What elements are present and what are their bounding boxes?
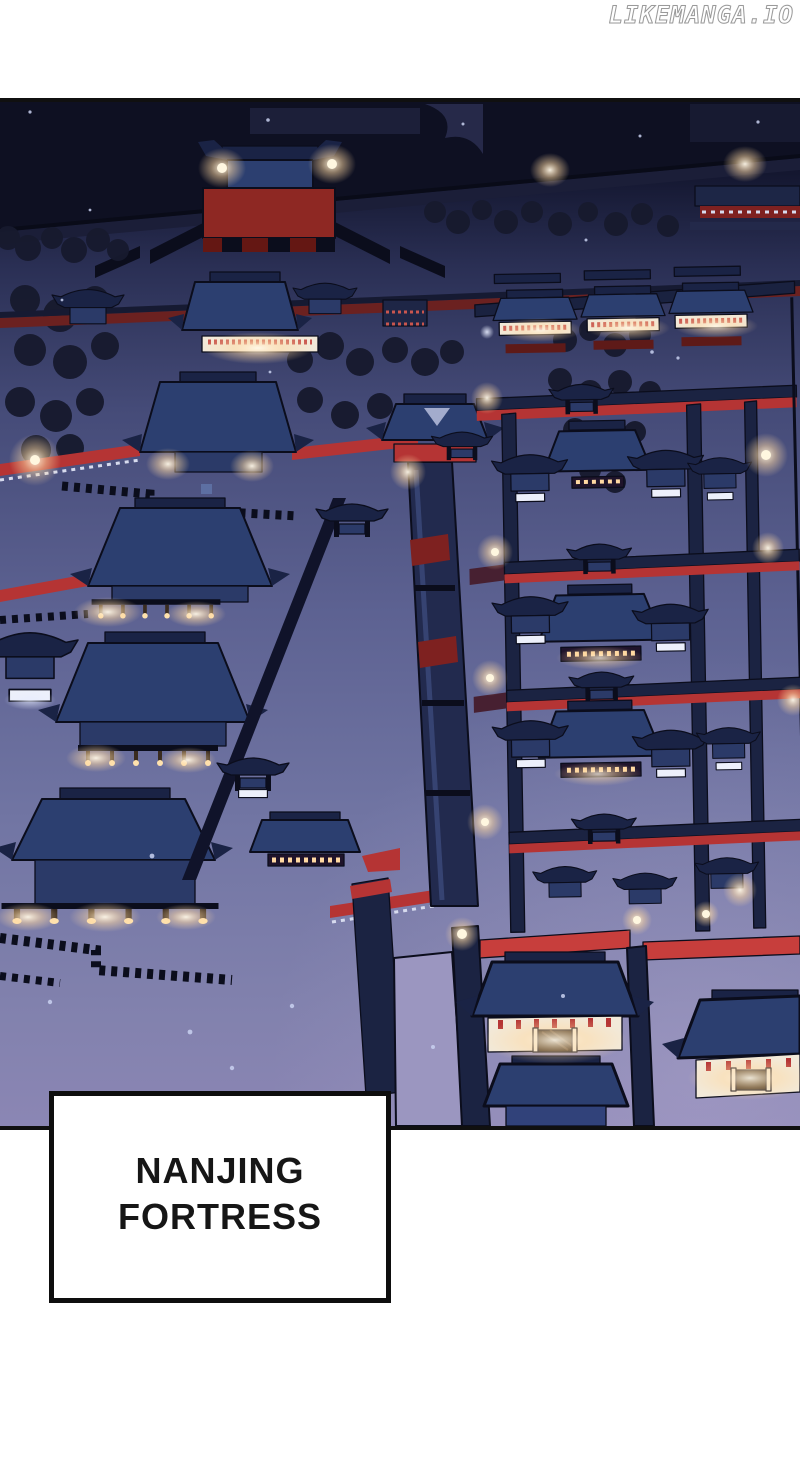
lit-lintel	[657, 769, 686, 778]
caption-line-2: FORTRESS	[54, 1194, 386, 1240]
distant-silhouette	[690, 104, 800, 142]
site-watermark: LIKEMANGA.IO	[609, 1, 794, 29]
gate-base	[203, 188, 335, 238]
manga-page: LIKEMANGA.IO	[0, 0, 800, 1471]
lit-lintel	[707, 492, 733, 500]
top-right-building	[690, 186, 800, 230]
night-scene-svg	[0, 102, 800, 1126]
lit-lintel	[516, 493, 545, 502]
lit-lintel	[239, 790, 268, 798]
lit-lintel	[652, 489, 681, 498]
light-wall	[394, 952, 464, 1126]
lit-lintel	[516, 635, 545, 644]
caption-line-1: NANJING	[54, 1148, 386, 1194]
lit-lintel	[716, 762, 742, 770]
lit-lintel	[656, 643, 685, 652]
caption-box: NANJING FORTRESS	[49, 1091, 391, 1303]
distant-silhouette	[250, 108, 420, 134]
illustration-panel	[0, 98, 800, 1130]
lit-lintel	[516, 759, 545, 768]
